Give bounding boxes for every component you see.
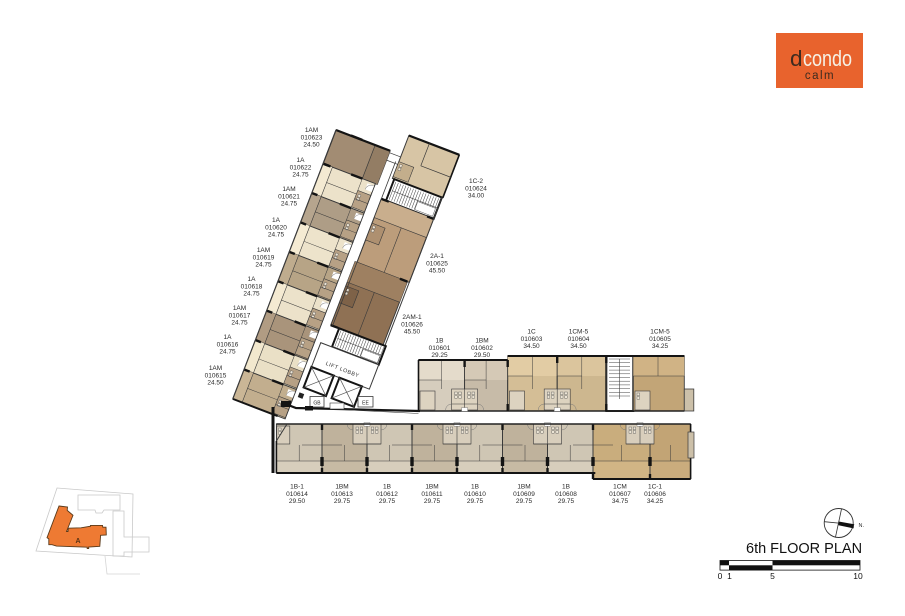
svg-text:dcondo: dcondo [790,46,852,71]
svg-text:0: 0 [718,571,723,581]
svg-text:5: 5 [770,571,775,581]
svg-text:EE: EE [362,401,369,407]
svg-text:N.: N. [859,523,865,529]
svg-text:6th FLOOR PLAN: 6th FLOOR PLAN [746,541,862,557]
svg-text:A: A [75,538,80,545]
svg-text:1CM-501060434.50: 1CM-501060434.50 [568,329,590,351]
svg-text:10: 10 [853,571,863,581]
svg-text:2AM-101062645.50: 2AM-101062645.50 [401,314,423,336]
svg-text:1CM-501060534.25: 1CM-501060534.25 [649,329,671,351]
svg-text:1: 1 [727,571,732,581]
svg-text:GB: GB [313,401,321,407]
svg-text:calm: calm [805,70,835,82]
